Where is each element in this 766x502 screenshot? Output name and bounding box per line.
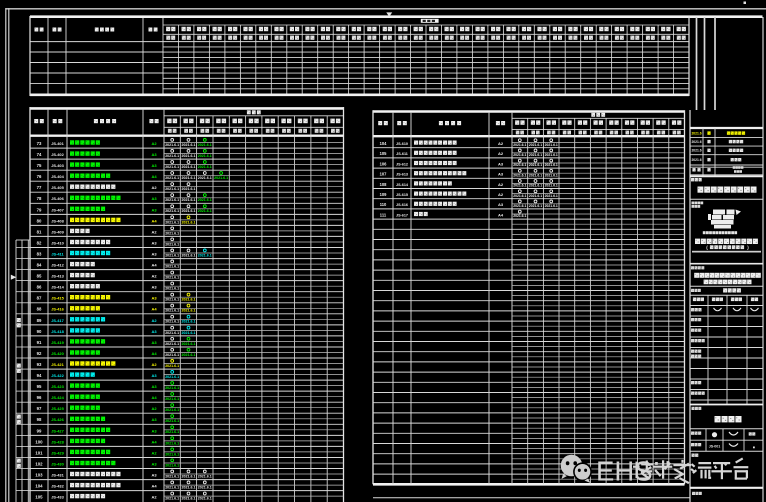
svg-text:JS-408: JS-408 (51, 218, 64, 223)
svg-text:2021.6.1: 2021.6.1 (198, 497, 212, 501)
svg-text:JS-404: JS-404 (51, 174, 64, 179)
svg-text:2021.6.1: 2021.6.1 (165, 231, 179, 235)
svg-text:JS-401: JS-401 (51, 141, 64, 146)
svg-text:2021.6.1: 2021.6.1 (198, 253, 212, 257)
svg-text:2021.6.1: 2021.6.1 (182, 198, 196, 202)
svg-text:JS-610: JS-610 (396, 142, 408, 146)
svg-text:JS-001: JS-001 (709, 445, 721, 449)
svg-text:100: 100 (35, 439, 43, 444)
svg-text:2021.6.1: 2021.6.1 (529, 163, 542, 167)
svg-text:2021.6.1: 2021.6.1 (545, 143, 558, 147)
svg-text:2021.6.1: 2021.6.1 (198, 486, 212, 490)
svg-text:JS-613: JS-613 (396, 173, 408, 177)
svg-text:JS-418: JS-418 (51, 329, 64, 334)
svg-text:2021.6.1: 2021.6.1 (529, 143, 542, 147)
svg-text:104: 104 (35, 484, 43, 489)
svg-text:2021.6.1: 2021.6.1 (165, 364, 179, 368)
svg-text:84: 84 (37, 263, 42, 268)
svg-text:2021.6.1: 2021.6.1 (214, 176, 228, 180)
svg-text:87: 87 (37, 296, 42, 301)
svg-text:2021.6: 2021.6 (691, 158, 701, 162)
svg-text:2021.6.1: 2021.6.1 (198, 198, 212, 202)
svg-text:A4: A4 (151, 218, 157, 223)
svg-text:105: 105 (35, 495, 43, 500)
svg-text:JS-416: JS-416 (51, 307, 64, 312)
svg-text:79: 79 (37, 207, 42, 212)
svg-text:73: 73 (37, 141, 42, 146)
svg-text:2021.6.1: 2021.6.1 (182, 342, 196, 346)
svg-text:103: 103 (35, 473, 43, 478)
svg-text:94: 94 (37, 373, 42, 378)
svg-text:A4: A4 (151, 174, 157, 179)
svg-text:A2: A2 (151, 406, 157, 411)
svg-text:A4: A4 (151, 439, 157, 444)
svg-text:A2: A2 (498, 151, 504, 156)
svg-text:2021.6.1: 2021.6.1 (165, 397, 179, 401)
svg-text:2021.6.1: 2021.6.1 (529, 184, 542, 188)
svg-text:2021.6.1: 2021.6.1 (513, 163, 526, 167)
svg-text:88: 88 (37, 307, 42, 312)
svg-text:JS-611: JS-611 (396, 152, 408, 156)
svg-text:101: 101 (35, 450, 43, 455)
svg-text:2021.6.1: 2021.6.1 (182, 176, 196, 180)
svg-text:A2: A2 (151, 229, 157, 234)
svg-text:JS-615: JS-615 (396, 193, 408, 197)
svg-text:2021.6.1: 2021.6.1 (165, 441, 179, 445)
svg-text:A2: A2 (151, 185, 157, 190)
svg-text:78: 78 (37, 196, 42, 201)
svg-text:2021.6.1: 2021.6.1 (165, 298, 179, 302)
svg-text:2021.6.1: 2021.6.1 (165, 452, 179, 456)
svg-text:JS-406: JS-406 (51, 196, 64, 201)
svg-text:JS-417: JS-417 (51, 318, 64, 323)
svg-text:A2: A2 (151, 274, 157, 279)
svg-text:111: 111 (380, 212, 387, 217)
svg-text:2021.6.1: 2021.6.1 (165, 309, 179, 313)
svg-text:A4: A4 (151, 263, 157, 268)
svg-text:A3: A3 (151, 207, 157, 212)
svg-text:JS-422: JS-422 (51, 373, 64, 378)
svg-text:A3: A3 (151, 196, 157, 201)
svg-text:2021.6.1: 2021.6.1 (182, 298, 196, 302)
svg-text:2021.6.1: 2021.6.1 (182, 165, 196, 169)
svg-text:JS-426: JS-426 (51, 417, 64, 422)
svg-text:2021.6.1: 2021.6.1 (529, 204, 542, 208)
svg-text:A3: A3 (151, 417, 157, 422)
svg-text:2021.6: 2021.6 (691, 140, 701, 144)
svg-text:2021.6.1: 2021.6.1 (182, 474, 196, 478)
svg-text:2021.6.1: 2021.6.1 (513, 194, 526, 198)
svg-text:A2: A2 (151, 318, 157, 323)
svg-text:107: 107 (380, 172, 388, 177)
svg-text:2021.6.1: 2021.6.1 (165, 474, 179, 478)
svg-text:A3: A3 (151, 252, 157, 257)
svg-text:A4: A4 (151, 351, 157, 356)
svg-text:2021.6.1: 2021.6.1 (529, 153, 542, 157)
svg-text:JS-403: JS-403 (51, 163, 64, 168)
svg-text:2021.6.1: 2021.6.1 (198, 209, 212, 213)
svg-text:89: 89 (37, 318, 42, 323)
svg-text:A3: A3 (151, 428, 157, 433)
svg-text:96: 96 (37, 395, 42, 400)
svg-text:92: 92 (37, 351, 42, 356)
svg-text:A3: A3 (151, 384, 157, 389)
svg-text:A2: A2 (498, 141, 504, 146)
svg-text:2021.6.1: 2021.6.1 (165, 265, 179, 269)
svg-text:2021.6.1: 2021.6.1 (165, 176, 179, 180)
svg-text:86: 86 (37, 285, 42, 290)
svg-text:2021.6.1: 2021.6.1 (165, 220, 179, 224)
svg-text:2021.6.1: 2021.6.1 (182, 143, 196, 147)
svg-text:JS-614: JS-614 (396, 183, 409, 187)
svg-text:108: 108 (380, 182, 388, 187)
svg-text:81: 81 (37, 229, 42, 234)
svg-text:A4: A4 (151, 307, 157, 312)
svg-text:2021.6.1: 2021.6.1 (165, 331, 179, 335)
svg-text:A3: A3 (151, 296, 157, 301)
svg-text:JS-413: JS-413 (51, 274, 64, 279)
svg-text:JS-425: JS-425 (51, 406, 64, 411)
svg-text:2021.6.1: 2021.6.1 (513, 173, 526, 177)
svg-text:JS-428: JS-428 (51, 439, 64, 444)
svg-text:2021.6.1: 2021.6.1 (182, 220, 196, 224)
svg-text:106: 106 (380, 161, 388, 166)
svg-text:JS-407: JS-407 (51, 207, 64, 212)
svg-text:JS-424: JS-424 (51, 395, 64, 400)
svg-text:2021.6.1: 2021.6.1 (165, 386, 179, 390)
svg-text:JS-431: JS-431 (51, 473, 64, 478)
svg-text:74: 74 (37, 152, 42, 157)
svg-text:A4: A4 (151, 395, 157, 400)
svg-text:2021.6.1: 2021.6.1 (513, 153, 526, 157)
svg-text:2021.6.1: 2021.6.1 (198, 143, 212, 147)
svg-text:2021.6.1: 2021.6.1 (545, 194, 558, 198)
svg-text:JS-433: JS-433 (51, 495, 64, 500)
svg-text:2021.6.1: 2021.6.1 (165, 353, 179, 357)
svg-text:2021.6.1: 2021.6.1 (513, 184, 526, 188)
svg-text:2021.6.1: 2021.6.1 (182, 497, 196, 501)
svg-text:JS-423: JS-423 (51, 384, 64, 389)
svg-text:2021.6.1: 2021.6.1 (165, 242, 179, 246)
svg-text:2021.6.1: 2021.6.1 (165, 209, 179, 213)
svg-text:2021.6.1: 2021.6.1 (529, 173, 542, 177)
svg-text:JS-405: JS-405 (51, 185, 64, 190)
svg-text:A3: A3 (151, 240, 157, 245)
svg-text:2021.6.1: 2021.6.1 (198, 474, 212, 478)
svg-text:75: 75 (37, 163, 42, 168)
svg-text:A3: A3 (151, 461, 157, 466)
svg-text:2021.6.1: 2021.6.1 (165, 408, 179, 412)
svg-text:A2: A2 (151, 362, 157, 367)
svg-text:2021.6.1: 2021.6.1 (513, 214, 526, 218)
svg-text:2021.6.1: 2021.6.1 (165, 486, 179, 490)
svg-text:102: 102 (35, 461, 43, 466)
svg-text:A3: A3 (498, 202, 504, 207)
svg-text:A2: A2 (498, 182, 504, 187)
svg-text:2021.6.1: 2021.6.1 (182, 309, 196, 313)
svg-text:JS-414: JS-414 (51, 285, 64, 290)
svg-text:A3: A3 (151, 285, 157, 290)
svg-text:JS-612: JS-612 (396, 162, 408, 166)
svg-text:2021.6.1: 2021.6.1 (182, 253, 196, 257)
svg-text:2021.6.1: 2021.6.1 (198, 154, 212, 158)
svg-text:A3: A3 (151, 329, 157, 334)
svg-text:2021.6.1: 2021.6.1 (545, 163, 558, 167)
svg-text:JS-429: JS-429 (51, 450, 64, 455)
svg-text:97: 97 (37, 406, 42, 411)
svg-text:2021.6.1: 2021.6.1 (513, 204, 526, 208)
svg-text:83: 83 (37, 252, 42, 257)
svg-text:2021.6.1: 2021.6.1 (198, 165, 212, 169)
svg-text:JS-412: JS-412 (51, 263, 64, 268)
svg-text:85: 85 (37, 274, 42, 279)
svg-text:2021.6.1: 2021.6.1 (165, 419, 179, 423)
svg-text:2021.6.1: 2021.6.1 (182, 353, 196, 357)
svg-text:2021.6: 2021.6 (691, 132, 701, 136)
svg-text:2021.6.1: 2021.6.1 (182, 154, 196, 158)
svg-text:105: 105 (380, 151, 388, 156)
svg-text:A2: A2 (151, 495, 157, 500)
svg-text:JS-420: JS-420 (51, 351, 64, 356)
svg-text:80: 80 (37, 218, 42, 223)
svg-text:2021.6.1: 2021.6.1 (182, 187, 196, 191)
svg-text:A2: A2 (151, 141, 157, 146)
svg-text:A3: A3 (498, 161, 504, 166)
svg-text:110: 110 (380, 202, 387, 207)
svg-text:2021.6.1: 2021.6.1 (545, 184, 558, 188)
svg-text:2021.6.1: 2021.6.1 (165, 320, 179, 324)
svg-text:2021.6.1: 2021.6.1 (165, 154, 179, 158)
svg-text:2021.6.1: 2021.6.1 (165, 287, 179, 291)
svg-text:A2: A2 (498, 192, 504, 197)
svg-text:JS-409: JS-409 (51, 229, 64, 234)
svg-text:A3: A3 (151, 473, 157, 478)
svg-text:JS-427: JS-427 (51, 428, 64, 433)
svg-text:2021.6.1: 2021.6.1 (165, 165, 179, 169)
svg-text:A4: A4 (151, 484, 157, 489)
svg-text:2021.6.1: 2021.6.1 (165, 198, 179, 202)
svg-text:82: 82 (37, 240, 42, 245)
svg-text:2021.6.1: 2021.6.1 (165, 375, 179, 379)
svg-text:2021.6.1: 2021.6.1 (198, 176, 212, 180)
svg-text:77: 77 (37, 185, 42, 190)
svg-text:2021.6.1: 2021.6.1 (513, 143, 526, 147)
svg-text:2021.6.1: 2021.6.1 (165, 463, 179, 467)
svg-text:91: 91 (37, 340, 42, 345)
svg-text:JS-402: JS-402 (51, 152, 64, 157)
svg-text:99: 99 (37, 428, 42, 433)
svg-text:104: 104 (380, 141, 388, 146)
svg-text:JS-430: JS-430 (51, 461, 64, 466)
svg-text:JS-432: JS-432 (51, 484, 64, 489)
svg-text:JS-415: JS-415 (51, 296, 64, 301)
svg-text:A3: A3 (151, 152, 157, 157)
svg-text:JS-421: JS-421 (51, 362, 64, 367)
svg-text:2021.6.1: 2021.6.1 (182, 486, 196, 490)
svg-text:2021.6.1: 2021.6.1 (182, 331, 196, 335)
svg-text:76: 76 (37, 174, 42, 179)
svg-text:JS-410: JS-410 (51, 240, 64, 245)
svg-text:A3: A3 (151, 340, 157, 345)
svg-text:2021.6: 2021.6 (691, 149, 701, 153)
svg-text:A3: A3 (498, 172, 504, 177)
svg-text:A4: A4 (498, 212, 504, 217)
svg-text:A3: A3 (151, 373, 157, 378)
svg-text:A2: A2 (151, 450, 157, 455)
svg-text:2021.6.1: 2021.6.1 (182, 209, 196, 213)
svg-text:2021.6.1: 2021.6.1 (165, 187, 179, 191)
svg-text:JS-411: JS-411 (51, 252, 64, 257)
svg-text:2021.6.1: 2021.6.1 (545, 173, 558, 177)
svg-text:98: 98 (37, 417, 42, 422)
svg-text:JS-616: JS-616 (396, 203, 408, 207)
svg-text:93: 93 (37, 362, 42, 367)
svg-text:2021.6.1: 2021.6.1 (545, 204, 558, 208)
svg-text:2021.6.1: 2021.6.1 (165, 430, 179, 434)
svg-text:2021.6.1: 2021.6.1 (165, 143, 179, 147)
svg-text:95: 95 (37, 384, 42, 389)
svg-text:2021.6.1: 2021.6.1 (165, 342, 179, 346)
svg-text:JS-617: JS-617 (396, 213, 408, 217)
svg-text:2021.6.1: 2021.6.1 (529, 194, 542, 198)
svg-text:2021.6.1: 2021.6.1 (165, 253, 179, 257)
svg-text:2021.6.1: 2021.6.1 (545, 153, 558, 157)
svg-text:2021.6.1: 2021.6.1 (165, 497, 179, 501)
svg-text:JS-419: JS-419 (51, 340, 64, 345)
svg-text:90: 90 (37, 329, 42, 334)
svg-text:2021.6.1: 2021.6.1 (165, 276, 179, 280)
svg-text:2021.6.1: 2021.6.1 (182, 320, 196, 324)
svg-text:109: 109 (380, 192, 388, 197)
svg-text:A3: A3 (151, 163, 157, 168)
